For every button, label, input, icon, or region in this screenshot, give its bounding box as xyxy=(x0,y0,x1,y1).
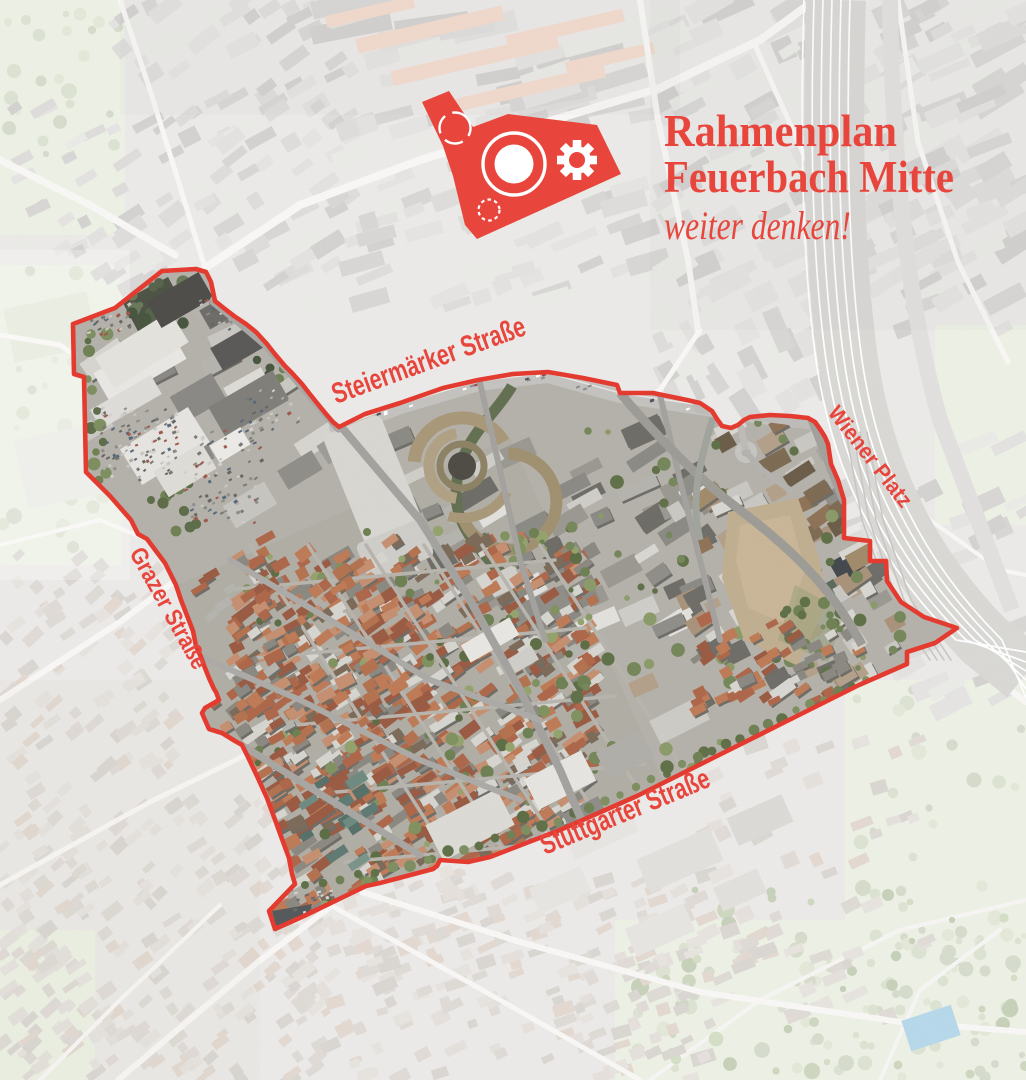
svg-text:Rahmenplan: Rahmenplan xyxy=(664,107,897,156)
svg-text:weiter denken!: weiter denken! xyxy=(664,203,851,247)
svg-text:Feuerbach Mitte: Feuerbach Mitte xyxy=(664,153,954,202)
